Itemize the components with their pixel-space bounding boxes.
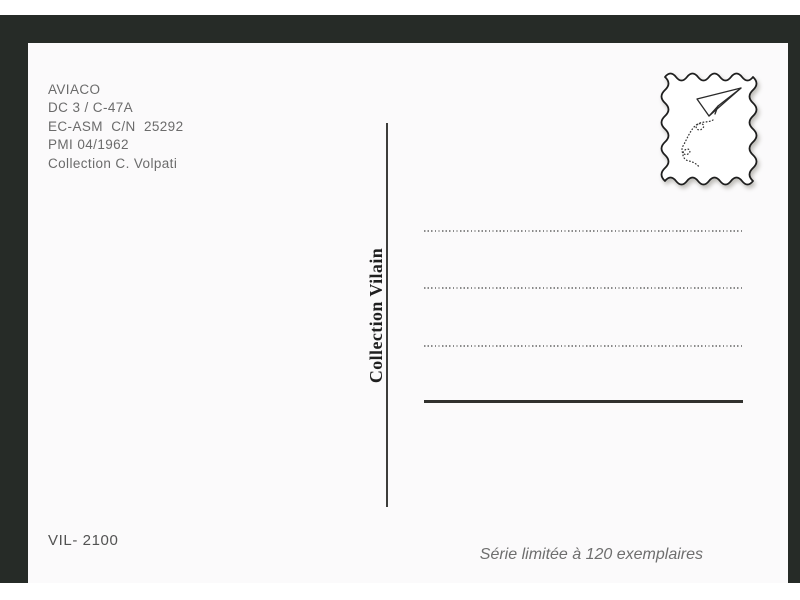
publisher-label: Collection Vilain bbox=[366, 123, 388, 507]
caption-line-aircraft: DC 3 / C-47A bbox=[48, 99, 184, 117]
address-dotted-line-3 bbox=[424, 345, 743, 347]
caption-line-place-date: PMI 04/1962 bbox=[48, 136, 184, 154]
address-solid-line bbox=[424, 400, 743, 403]
limited-edition-note: Série limitée à 120 exemplaires bbox=[480, 546, 703, 564]
catalog-reference: VIL- 2100 bbox=[48, 532, 118, 549]
caption-line-airline: AVIACO bbox=[48, 81, 184, 99]
publisher-label-text: Collection Vilain bbox=[367, 247, 388, 382]
photo-caption-block: AVIACO DC 3 / C-47A EC-ASM C/N 25292 PMI… bbox=[48, 81, 184, 173]
stamp-box bbox=[660, 68, 758, 190]
address-dotted-line-1 bbox=[424, 230, 743, 232]
caption-line-photo-credit: Collection C. Volpati bbox=[48, 155, 184, 173]
scan-mat: AVIACO DC 3 / C-47A EC-ASM C/N 25292 PMI… bbox=[0, 15, 800, 583]
caption-line-registration: EC-ASM C/N 25292 bbox=[48, 118, 184, 136]
postcard-back: AVIACO DC 3 / C-47A EC-ASM C/N 25292 PMI… bbox=[28, 43, 788, 583]
stamp-frame bbox=[662, 74, 757, 185]
address-dotted-line-2 bbox=[424, 287, 743, 289]
